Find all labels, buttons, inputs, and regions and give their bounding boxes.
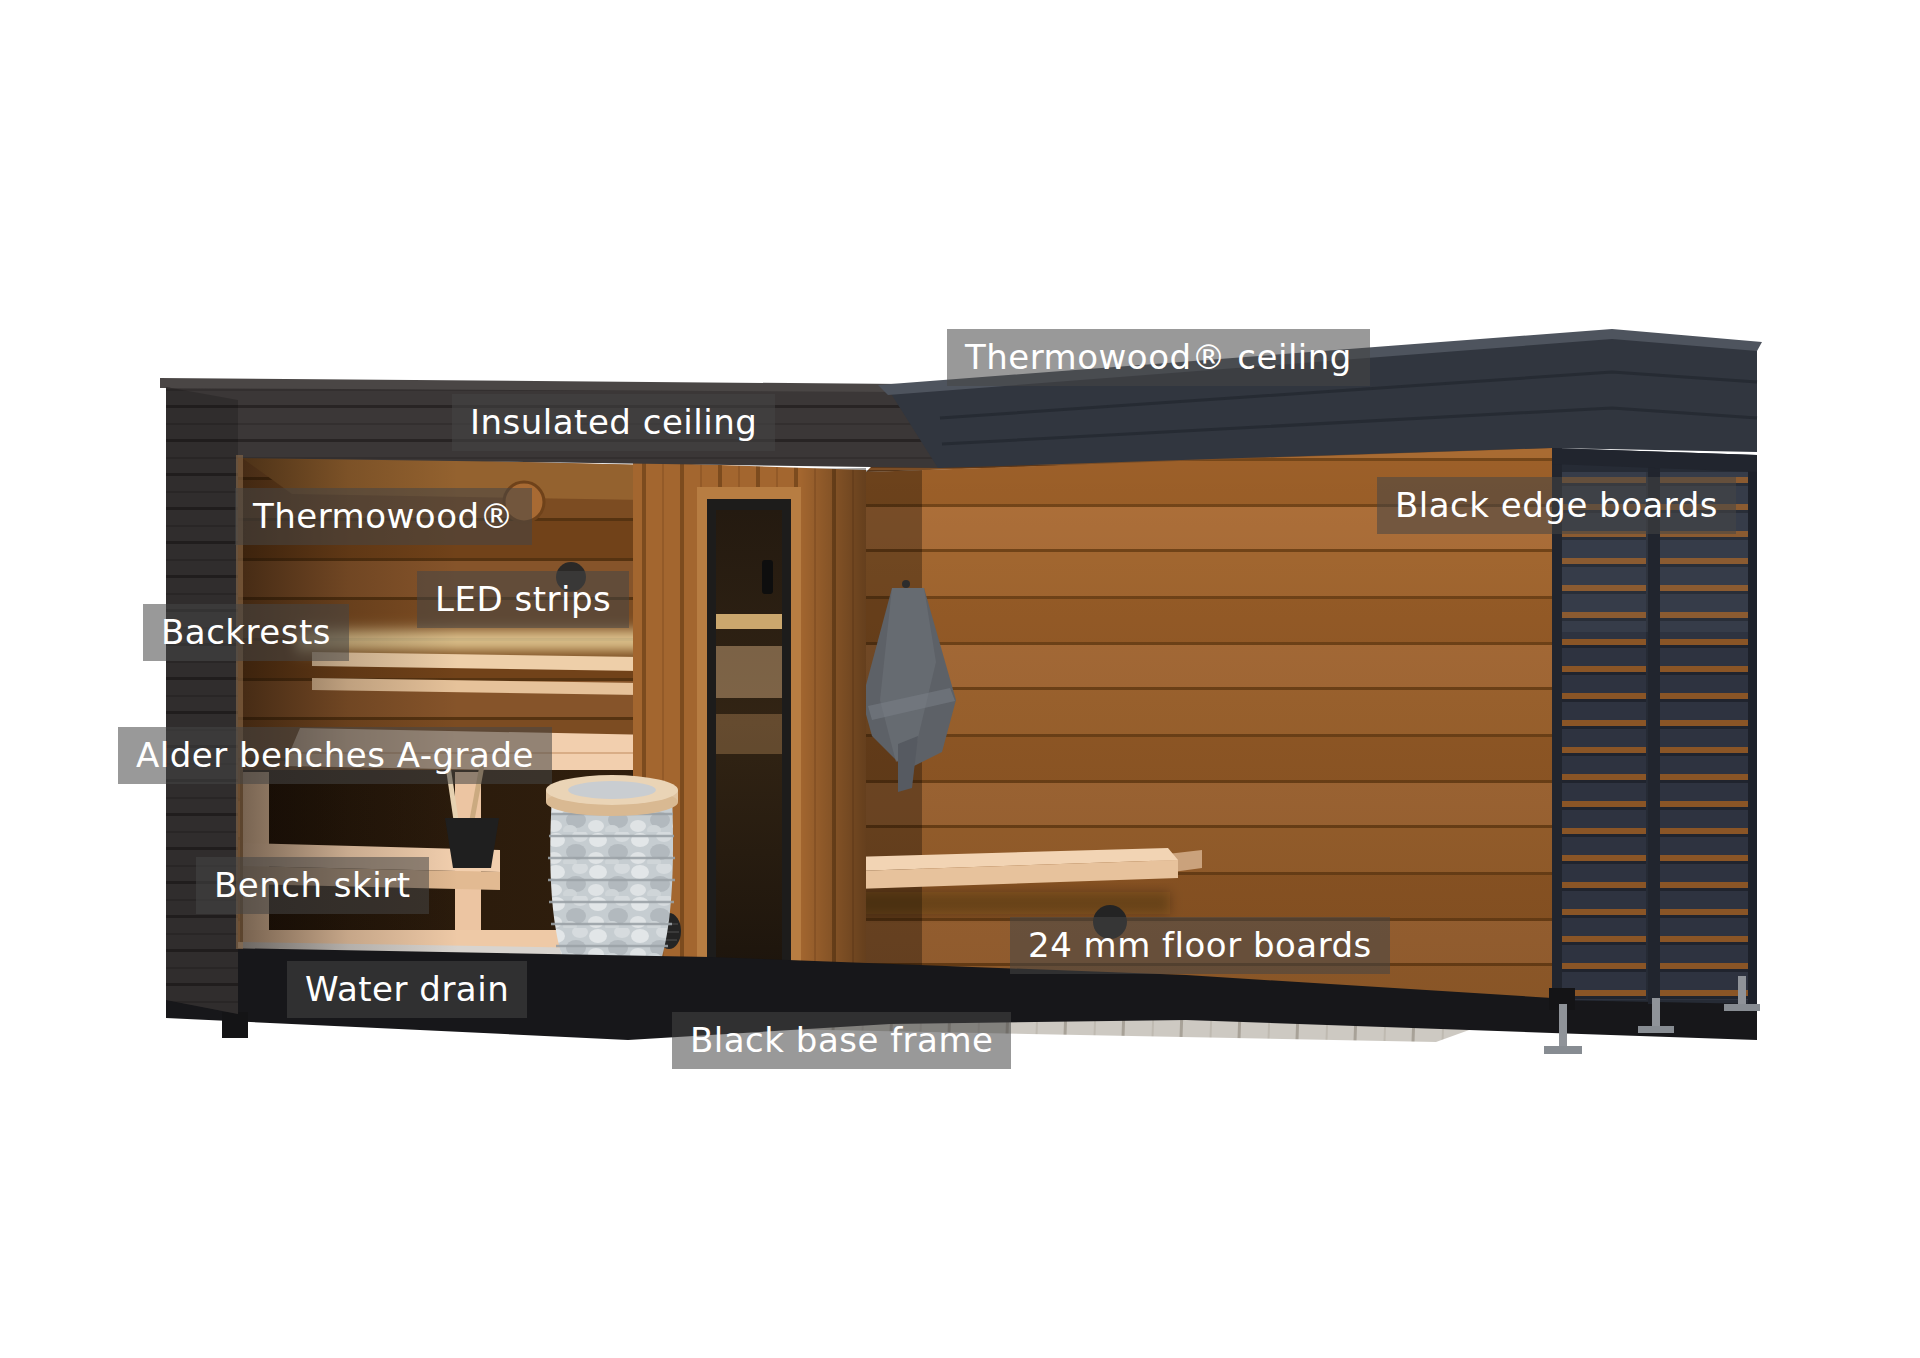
partition-corner-shade <box>800 468 866 1004</box>
label-thermowood: Thermowood® <box>235 488 532 545</box>
label-backrests: Backrests <box>143 604 349 661</box>
label-bench-skirt: Bench skirt <box>196 857 429 914</box>
sauna-illustration <box>0 0 1920 1358</box>
glass-door <box>697 487 801 1001</box>
label-insulated-ceiling: Insulated ceiling <box>452 394 775 451</box>
label-floor-boards: 24 mm floor boards <box>1010 917 1390 974</box>
annotated-sauna-figure: Thermowood® ceiling Insulated ceiling Th… <box>0 0 1920 1358</box>
terrace <box>816 382 1552 1008</box>
label-water-drain: Water drain <box>287 961 527 1018</box>
label-thermowood-ceiling: Thermowood® ceiling <box>947 329 1370 386</box>
label-black-edge-boards: Black edge boards <box>1377 477 1736 534</box>
door-handle <box>762 560 773 594</box>
left-exterior-wall <box>166 387 243 1014</box>
label-alder-benches: Alder benches A-grade <box>118 727 552 784</box>
heater-wood-ring <box>546 775 678 816</box>
label-led-strips: LED strips <box>417 571 629 628</box>
label-black-base-frame: Black base frame <box>672 1012 1011 1069</box>
